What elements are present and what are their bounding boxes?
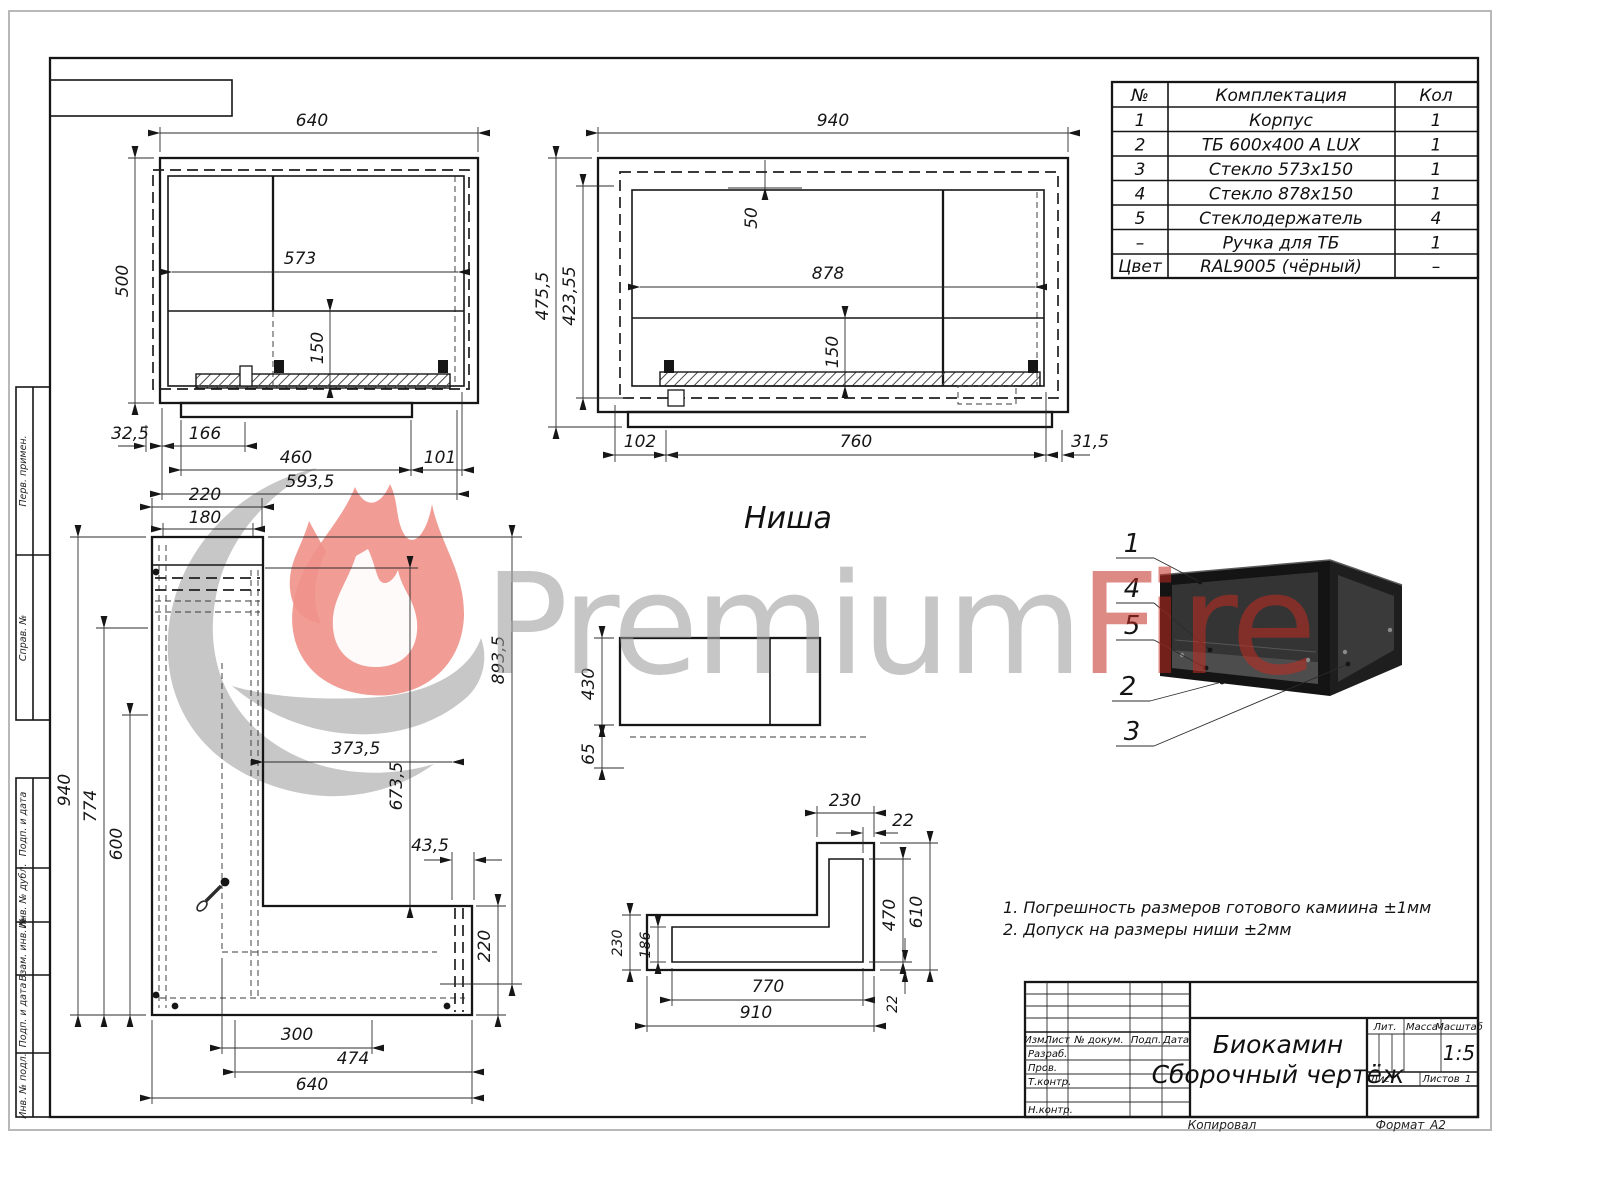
dim-f2-width: 940	[817, 111, 849, 131]
dim-np-wall-b: 22	[885, 995, 901, 1013]
tb-prov: Пров.	[1028, 1063, 1057, 1074]
dim-f2-top: 50	[742, 207, 762, 229]
dim-p-b3: 640	[296, 1075, 328, 1095]
tb-data: Дата	[1162, 1035, 1189, 1046]
dim-f2-glass-w: 878	[812, 264, 845, 284]
parts-row-qty: –	[1432, 257, 1441, 277]
tb-dokum: № докум.	[1073, 1035, 1123, 1046]
tb-nkontr: Н.контр.	[1028, 1105, 1073, 1116]
callout-4: 4	[1124, 574, 1141, 604]
dim-np-inner-l: 186	[638, 932, 654, 959]
parts-row-qty: 1	[1431, 136, 1442, 156]
title-block: Изм. Лист № докум. Подп. Дата Разраб. Пр…	[1024, 982, 1483, 1132]
dim-f1-b2: 166	[189, 424, 222, 444]
dim-np-top: 230	[829, 791, 861, 811]
callout-5: 5	[1124, 611, 1141, 641]
parts-row-qty: 4	[1431, 209, 1442, 229]
dim-f2-glass-h: 150	[823, 336, 843, 368]
callout-2: 2	[1120, 672, 1137, 702]
niche-title: Ниша	[744, 501, 832, 536]
dim-p-gap: 43,5	[411, 836, 449, 856]
dim-f1-b3: 460	[280, 448, 312, 468]
parts-row-no: 1	[1135, 111, 1146, 131]
dim-f1-total: 593,5	[286, 472, 335, 492]
doc-title-line1: Биокамин	[1213, 1030, 1344, 1059]
tb-list-label: Лист	[1369, 1074, 1397, 1085]
niche-section-view: Ниша 430 65	[579, 501, 868, 768]
parts-row-name: Ручка для ТБ	[1223, 234, 1340, 254]
dim-p-b1: 300	[281, 1025, 313, 1045]
parts-row-qty: 1	[1431, 234, 1442, 254]
dim-f2-b2: 760	[840, 432, 872, 452]
dim-p-b2: 474	[337, 1049, 369, 1069]
dim-f1-height: 500	[113, 265, 133, 297]
front-view-small: 640 500 573 150 32,5 166 460 101 593,5	[111, 111, 478, 500]
parts-row-no: 5	[1135, 209, 1146, 229]
parts-row-qty: 1	[1431, 111, 1442, 131]
parts-row-name: Корпус	[1249, 111, 1313, 131]
dim-np-right: 610	[907, 896, 927, 928]
parts-row-no: 4	[1135, 185, 1146, 205]
parts-row-name: Стекло 573х150	[1209, 160, 1353, 180]
parts-row-no: Цвет	[1118, 257, 1163, 277]
note-2: 2. Допуск на размеры ниши ±2мм	[1003, 920, 1291, 939]
dim-p-niche-h: 893,5	[489, 636, 509, 685]
parts-row-name: RAL9005 (чёрный)	[1200, 257, 1362, 277]
dim-p-leg-outer: 220	[189, 485, 221, 505]
parts-row-name: Стекло 878х150	[1209, 185, 1353, 205]
dim-np-inner-h: 470	[880, 899, 900, 931]
dim-f1-glass-h: 150	[308, 332, 328, 364]
dim-f1-width: 640	[296, 111, 328, 131]
kopiroval-label: Копировал	[1188, 1118, 1257, 1132]
tb-podp: Подп.	[1131, 1035, 1161, 1046]
iso-view: 1 4 5 2 3	[1112, 529, 1402, 747]
dim-np-wall-t: 22	[892, 811, 914, 831]
dim-p-h3: 600	[107, 828, 127, 860]
side-stamp-sprav-no: Справ. №	[16, 563, 32, 713]
tb-massa: Масса	[1406, 1022, 1438, 1033]
dim-f2-b3: 31,5	[1071, 432, 1109, 452]
parts-row-name: Стеклодержатель	[1199, 209, 1363, 229]
dim-f1-b4: 101	[424, 448, 456, 468]
dim-f1-glass-w: 573	[284, 249, 316, 269]
tb-listov-label: Листов	[1421, 1074, 1459, 1085]
top-left-stamp	[50, 80, 232, 116]
tb-listov-value: 1	[1465, 1074, 1471, 1085]
doc-title-line2: Сборочный чертёж	[1152, 1060, 1405, 1089]
dim-f1-b1: 32,5	[111, 424, 149, 444]
tb-lit: Лит.	[1372, 1022, 1396, 1033]
tb-masshtab: Масштаб	[1435, 1021, 1483, 1033]
dim-np-inner-w: 770	[752, 977, 784, 997]
tb-razrab: Разраб.	[1028, 1048, 1067, 1060]
side-stamp-perv-primen: Перв. примен.	[16, 396, 32, 546]
dim-f2-h2: 423,55	[560, 266, 580, 325]
dim-p-leg-inner: 180	[189, 508, 221, 528]
parts-row-no: –	[1136, 234, 1145, 254]
dim-p-open-w: 373,5	[332, 739, 381, 759]
parts-header-qty: Кол	[1419, 86, 1452, 106]
dim-p-leg-h: 220	[475, 930, 495, 962]
dim-f2-b1: 102	[624, 432, 656, 452]
callout-1: 1	[1124, 529, 1141, 559]
dim-f2-h1: 475,5	[533, 272, 553, 321]
dim-p-h2: 774	[81, 790, 101, 822]
dim-p-open-h: 673,5	[387, 762, 407, 811]
tb-scale-value: 1:5	[1443, 1041, 1475, 1065]
dim-p-h: 940	[55, 774, 75, 806]
callout-3: 3	[1124, 717, 1141, 747]
format-value: А2	[1429, 1118, 1446, 1132]
note-1: 1. Погрешность размеров готового камиина…	[1003, 898, 1431, 917]
niche-plan-view: 230 22 610 470 186 230 770 910 22	[610, 791, 938, 1032]
notes: 1. Погрешность размеров готового камиина…	[1003, 898, 1431, 939]
dim-np-left: 230	[610, 930, 626, 957]
dim-ns-h: 430	[579, 668, 599, 700]
parts-table: № Комплектация Кол 1 Корпус 1 2 ТБ 600х4…	[1112, 82, 1478, 278]
parts-row-name: ТБ 600х400 А LUX	[1202, 136, 1361, 156]
tb-list: Лист	[1043, 1035, 1071, 1046]
parts-row-qty: 1	[1431, 185, 1442, 205]
parts-header-no: №	[1130, 86, 1149, 106]
parts-row-no: 2	[1135, 136, 1146, 156]
front-view-large: 940 50 878 150 475,5 423,55 102 760 31,5	[533, 111, 1109, 462]
parts-header-name: Комплектация	[1215, 86, 1346, 106]
side-stamp-inv-podl: Инв. № подл.	[16, 1011, 32, 1161]
tb-tkontr: Т.контр.	[1028, 1077, 1071, 1088]
parts-row-qty: 1	[1431, 160, 1442, 180]
dim-ns-off: 65	[579, 743, 599, 765]
parts-row-no: 3	[1135, 160, 1146, 180]
drawing-canvas: 640 500 573 150 32,5 166 460 101 593,5	[0, 0, 1600, 1200]
format-label: Формат	[1376, 1118, 1426, 1132]
dim-np-bottom: 910	[740, 1003, 772, 1023]
